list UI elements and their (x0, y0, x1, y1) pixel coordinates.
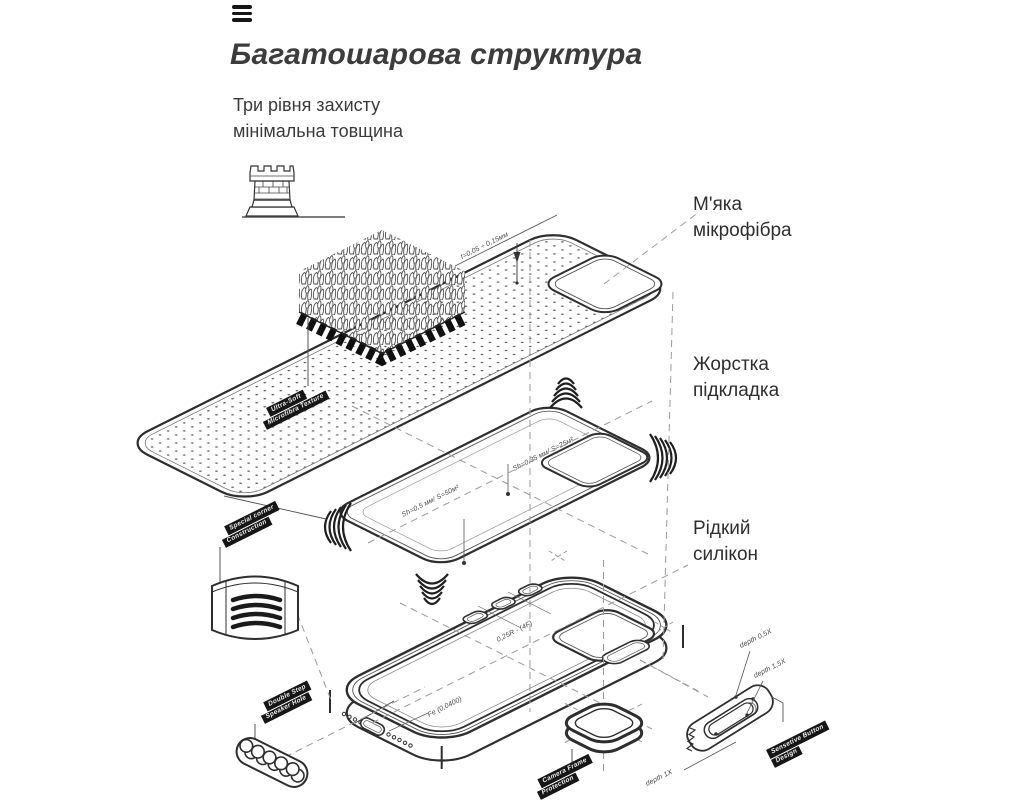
camera-frame-detail (558, 700, 650, 762)
castle-tower-icon (242, 166, 345, 217)
annotation-depth-1: depth 1X (645, 769, 674, 788)
infographic-page: Багатошарова структура Три рівня захисту… (0, 0, 1024, 800)
annotation-depth-15: depth 1,5X (753, 658, 788, 680)
speaker-holes-detail (232, 724, 312, 792)
annotation-depth-05: depth 0,5X (739, 628, 774, 650)
exploded-diagram: t=0,05 ÷ 0,15мм Sh=0,35 мм/ S=25м² Sh=0,… (0, 0, 1024, 800)
